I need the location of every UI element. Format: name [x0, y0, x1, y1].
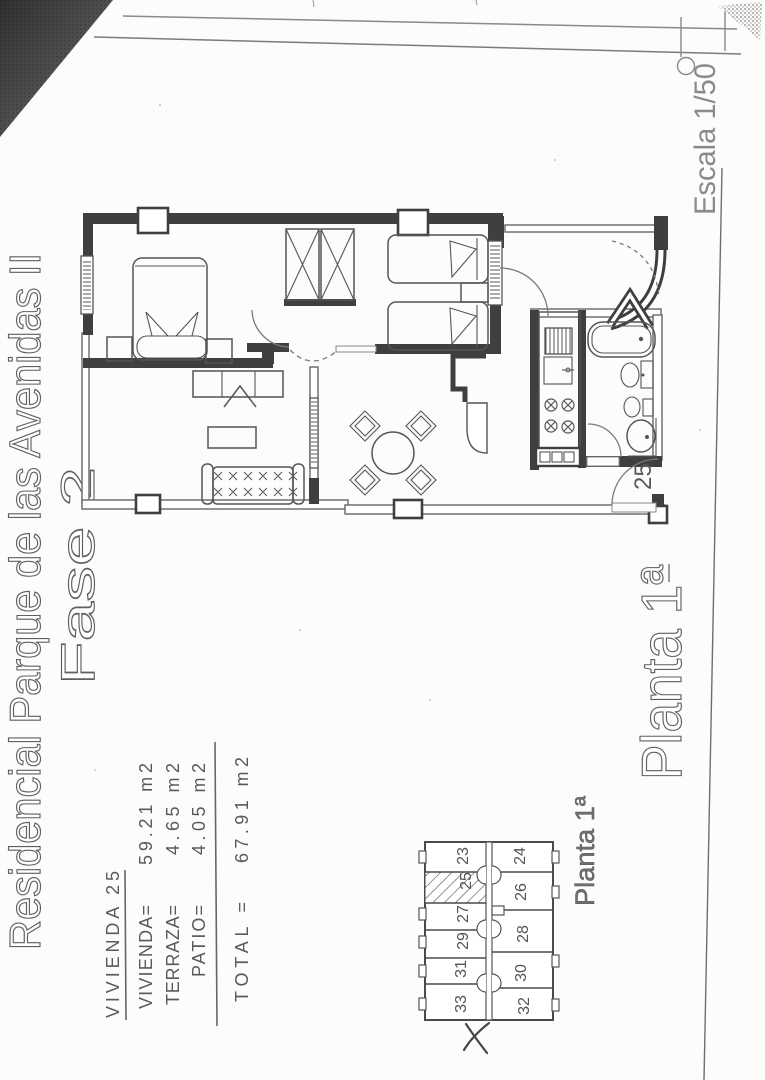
- unit-number: 27: [455, 905, 472, 923]
- hall-door-leaf: [467, 403, 487, 453]
- bidet: [624, 397, 653, 417]
- bathroom: [588, 322, 656, 456]
- scan-corner-fold-texture: [0, 0, 113, 137]
- window-bedroom2: [490, 245, 500, 301]
- sheet-canvas: Residencial Parque de las Avenidas II Fa…: [0, 0, 765, 1080]
- area-table-header-underline: [125, 870, 126, 1020]
- area-total-value: 67.91 m2: [232, 757, 252, 863]
- scale-label: Escala 1/50: [689, 63, 722, 215]
- kitchen-burners: [545, 399, 574, 433]
- dining-chairs: [350, 411, 436, 495]
- plan-unit-number: 25: [630, 463, 657, 490]
- page-border-line-top-1: [123, 16, 737, 29]
- unit-number: 28: [515, 925, 532, 943]
- unit-number: 25: [458, 872, 475, 890]
- area-row-value: 4.65 m2: [163, 763, 183, 855]
- unit-number: 32: [516, 997, 533, 1015]
- handwritten-x-mark: [464, 1023, 489, 1053]
- area-row-label: TERRAZA=: [163, 905, 183, 1005]
- area-row-label: PATIO=: [189, 905, 209, 977]
- kitchen: [536, 312, 580, 466]
- bedroom1-door-arc: [252, 310, 289, 347]
- washbasin: [627, 418, 656, 456]
- nightstand-between: [461, 283, 488, 302]
- single-bed-b: [388, 302, 488, 350]
- area-table: VIVIENDA 25 VIVIENDA= 59.21 m2 TERRAZA= …: [103, 742, 252, 1026]
- bed-pillows: [146, 312, 198, 336]
- sofa-stitching: [214, 472, 297, 496]
- bedroom1-furniture: [107, 258, 232, 363]
- area-table-total-rule: [215, 742, 217, 1026]
- bathroom-door-arc: [588, 424, 621, 457]
- sofa: [202, 464, 304, 504]
- key-plan-corridor: [486, 842, 492, 1020]
- closet-step-wall: [453, 356, 486, 402]
- unit-number: 33: [453, 995, 470, 1013]
- double-bed: [133, 258, 207, 360]
- scan-tick-2: [476, 0, 477, 5]
- page-border-line-top-2: [94, 37, 741, 54]
- sideboard: [193, 371, 283, 397]
- unit-number: 29: [455, 932, 472, 950]
- scanned-plan-sheet: Residencial Parque de las Avenidas II Fa…: [0, 0, 765, 1080]
- page-border-line-right: [704, 168, 722, 1080]
- unit-number: 26: [513, 883, 530, 901]
- area-total-label: TOTAL =: [232, 902, 252, 1002]
- bathroom-threshold: [587, 457, 619, 466]
- kitchen-appliance: [545, 328, 572, 354]
- area-row-value: 4.05 m2: [189, 763, 209, 855]
- hall-threshold: [336, 346, 376, 352]
- nightstand-left: [107, 337, 132, 361]
- scan-speckles: [94, 104, 701, 771]
- area-row-label: VIVIENDA=: [136, 905, 156, 1009]
- thin-walls: [82, 225, 665, 514]
- wardrobes: [286, 229, 354, 300]
- key-plan: 23 25 27 29 31 33 24 26 28 30 32: [419, 842, 559, 1053]
- floor-label-small: Planta 1ª: [570, 795, 600, 906]
- area-row-value: 59.21 m2: [136, 763, 156, 865]
- unit-number: 30: [513, 964, 530, 982]
- area-table-header: VIVIENDA 25: [103, 871, 123, 1018]
- floor-label-large: Planta 1ª: [630, 564, 694, 780]
- unit-number: 31: [453, 960, 470, 978]
- project-title: Residencial Parque de las Avenidas II: [1, 253, 50, 950]
- coffee-table: [208, 427, 256, 448]
- unit-number: 23: [455, 847, 472, 865]
- entrance-threshold: [612, 503, 656, 512]
- bedroom2-furniture: [388, 235, 488, 350]
- wardrobe-door-dashed-arc: [290, 350, 338, 361]
- kitchen-cabinet: [536, 448, 580, 466]
- window-bedroom1: [83, 260, 91, 310]
- windows: [81, 241, 502, 468]
- dining-table: [372, 432, 414, 474]
- unit-number: 24: [512, 847, 529, 865]
- toilet: [621, 361, 653, 388]
- main-floor-plan: 25: [81, 208, 668, 523]
- scan-tick-1: [313, 0, 314, 7]
- window-patio: [311, 401, 317, 465]
- single-bed-a: [388, 235, 488, 283]
